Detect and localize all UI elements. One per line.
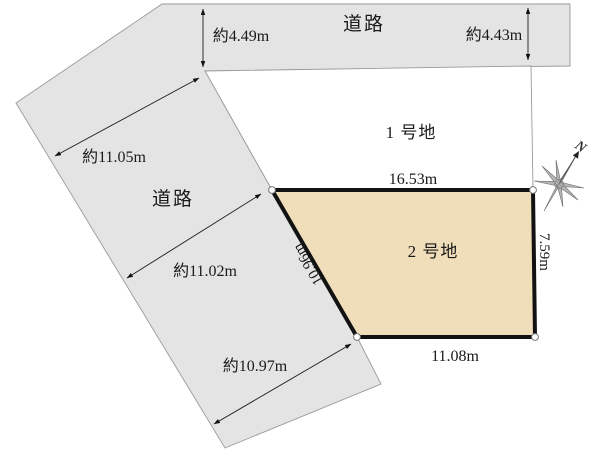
plot1-label: 1 号地: [386, 123, 437, 142]
dim-road-side-bottom: 約10.97m: [223, 357, 288, 375]
dim-road-top-right: 約4.43m: [466, 26, 523, 44]
dim-road-side-middle: 約11.02m: [173, 262, 237, 280]
road-top-label: 道路: [343, 13, 385, 35]
plot2-dim-bottom: 11.08m: [431, 348, 479, 365]
plot2-dim-top: 16.53m: [389, 171, 438, 188]
dim-road-top-left: 約4.49m: [213, 27, 270, 45]
compass-north-letter: N: [571, 138, 589, 157]
dim-road-side-top: 約11.05m: [82, 148, 146, 166]
plot2-label: 2 号地: [408, 242, 459, 261]
plot2-dim-right: 7.59m: [536, 233, 552, 271]
site-plan-page: 道路 道路 約4.49m 約4.43m 約11.05m 約11.02m 約10.…: [0, 0, 600, 450]
road-side-label: 道路: [152, 188, 194, 210]
compass-north-icon: N: [534, 138, 589, 211]
site-plan-diagram: 道路 道路 約4.49m 約4.43m 約11.05m 約11.02m 約10.…: [0, 0, 600, 450]
